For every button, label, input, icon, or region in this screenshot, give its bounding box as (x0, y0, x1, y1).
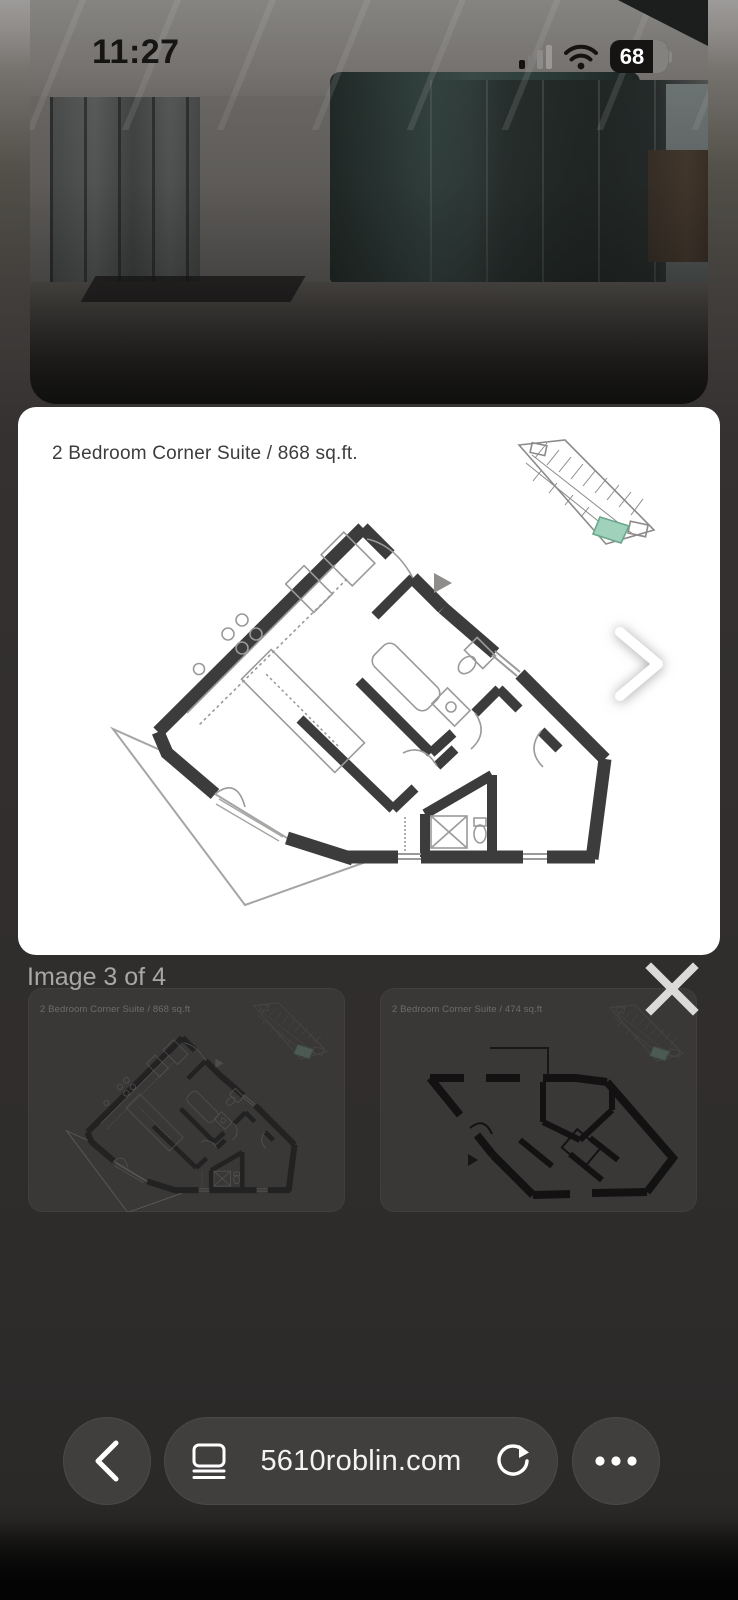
bottom-fade (0, 1520, 738, 1600)
next-image-button[interactable] (604, 620, 674, 708)
close-icon (643, 960, 701, 1018)
thumbnail-floorplan-868[interactable]: 2 Bedroom Corner Suite / 868 sq.ft (28, 988, 345, 1212)
reload-icon[interactable] (495, 1442, 531, 1480)
floorplan-drawing (95, 507, 655, 917)
ellipsis-icon (592, 1455, 640, 1467)
battery-percent: 68 (610, 40, 654, 73)
status-bar: 11:27 68 (0, 0, 738, 100)
close-button[interactable] (643, 960, 701, 1018)
clock: 11:27 (92, 33, 180, 72)
more-options-button[interactable] (572, 1417, 660, 1505)
back-button[interactable] (63, 1417, 151, 1505)
floorplan-title: 2 Bedroom Corner Suite / 868 sq.ft. (52, 443, 358, 465)
chevron-left-icon (90, 1437, 124, 1485)
reader-icon[interactable] (191, 1442, 227, 1480)
url-bar[interactable]: 5610roblin.com (164, 1417, 558, 1505)
browser-toolbar: 5610roblin.com (0, 1400, 738, 1530)
image-counter: Image 3 of 4 (27, 963, 166, 992)
thumbnail-caption: 2 Bedroom Corner Suite / 868 sq.ft (40, 1004, 190, 1015)
thumbnail-keyplan (246, 998, 332, 1064)
thumbnail-floorplan-474[interactable]: 2 Bedroom Corner Suite / 474 sq.ft (380, 988, 697, 1212)
cellular-signal-icon (519, 45, 552, 69)
entry-arrow (434, 573, 452, 593)
battery-icon: 68 (610, 40, 672, 73)
phone-screen: 11:27 68 2 Bedroom Corner Suite / 868 sq… (0, 0, 738, 1600)
url-text: 5610roblin.com (260, 1445, 461, 1478)
wifi-icon (564, 44, 598, 70)
chevron-right-icon (604, 620, 674, 708)
